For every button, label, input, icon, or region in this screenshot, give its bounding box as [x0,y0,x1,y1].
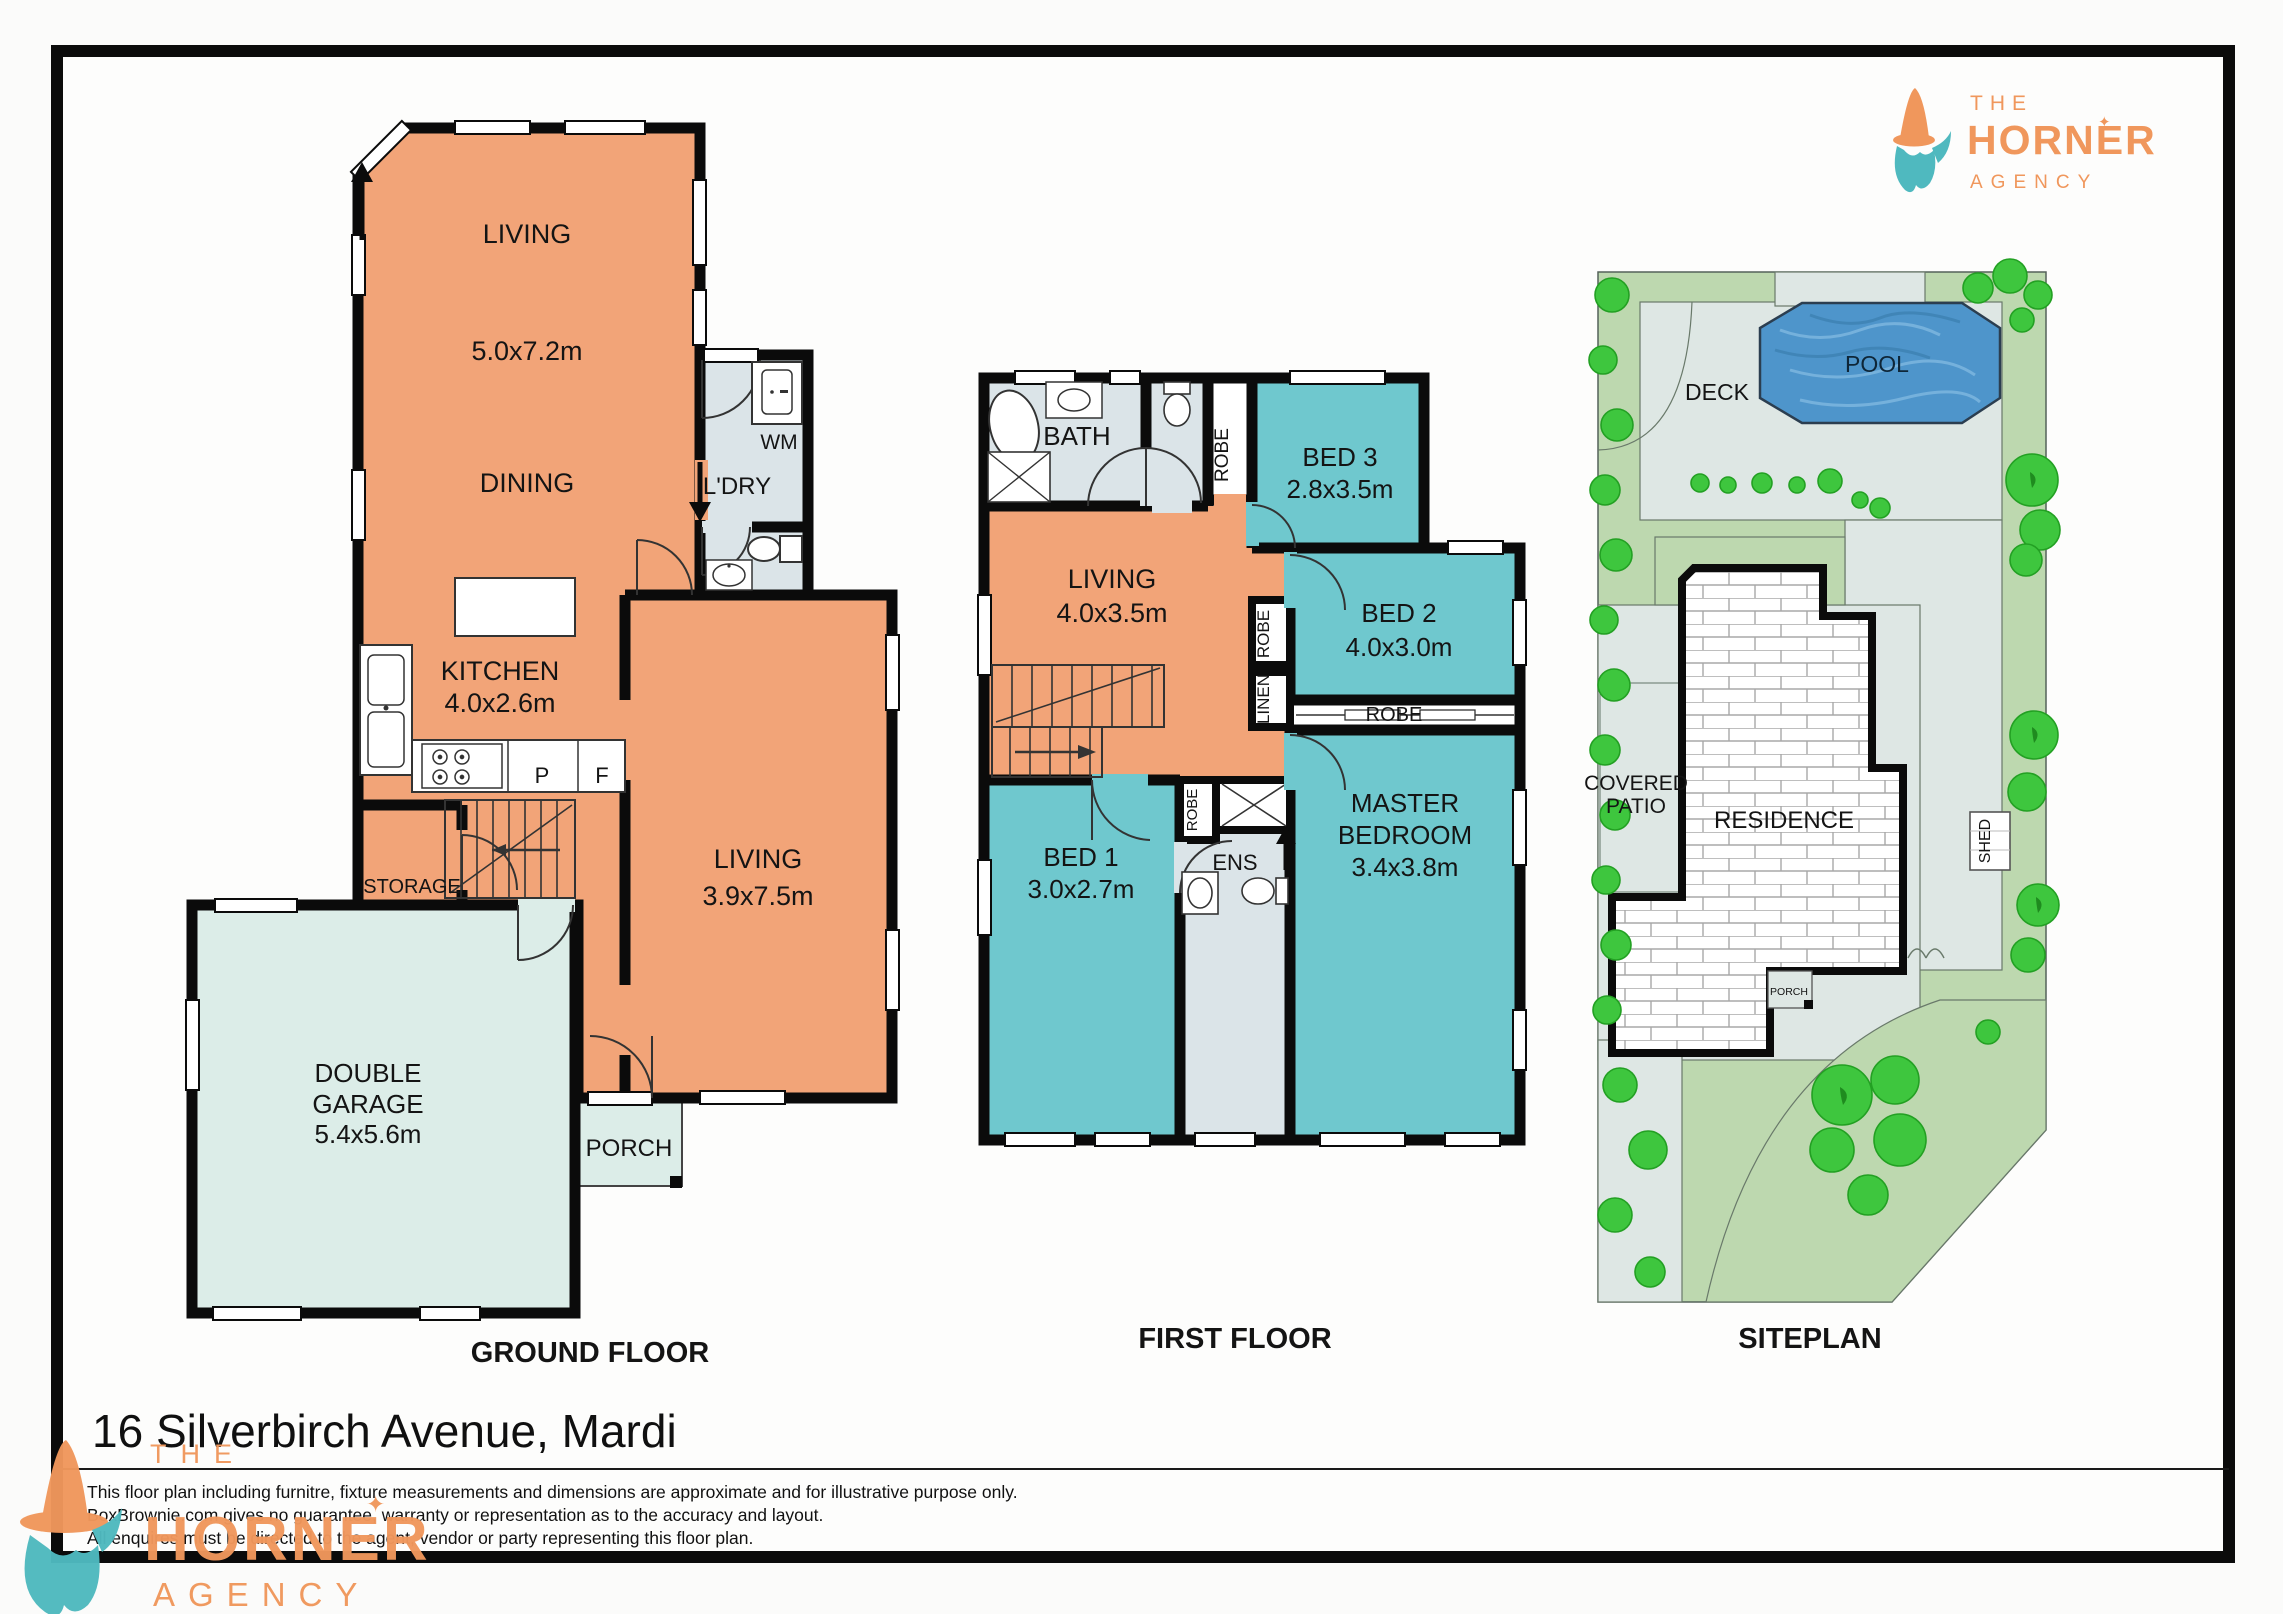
room-label-garage1: DOUBLE [315,1058,422,1088]
logo-horner: HORNER [1967,117,2157,163]
robe-label: ROBE [1254,610,1273,658]
room-label-living1: LIVING [483,219,572,249]
door-gap [1284,733,1297,790]
toilet-icon [748,536,802,562]
door-gap [1284,552,1297,608]
robe-label: ROBE [1184,789,1201,832]
room-label-living: LIVING [1068,564,1157,594]
room-label-garage2: GARAGE [312,1089,423,1119]
room-label-bed2: BED 2 [1361,598,1436,628]
room-label-bed3: BED 3 [1302,442,1377,472]
room-label-kitchen: KITCHEN [441,656,560,686]
floorplan-page: LIVING 5.0x7.2m DINING L'DRY WM KITCHEN … [0,0,2283,1614]
residence-label: RESIDENCE [1714,807,1854,834]
ground-floor-title: GROUND FLOOR [471,1337,709,1369]
plans-svg: LIVING 5.0x7.2m DINING L'DRY WM KITCHEN … [0,0,2283,1614]
room-label-living2: LIVING [714,844,803,874]
logo-the: THE [1970,92,2033,115]
toilet-icon [1276,878,1288,904]
room-label-master2: BEDROOM [1338,820,1472,850]
shed-label: SHED [1977,819,1994,863]
label-pantry: P [535,763,550,788]
disclaimer-line-2: BoxBrownie.com gives no guarantee, warra… [87,1505,823,1526]
room-dims-bed2: 4.0x3.0m [1346,632,1453,662]
room-label-dining: DINING [480,468,575,498]
porch-post [670,1176,682,1188]
door-gap [1214,494,1246,507]
title-divider [57,1468,2229,1470]
room-dims-living1: 5.0x7.2m [471,336,582,366]
room-dims-living: 4.0x3.5m [1056,598,1167,628]
room-label-bed1: BED 1 [1043,842,1118,872]
disclaimer-line-3: All enquires must be directed to the age… [87,1528,753,1549]
gnome-icon [1893,88,1951,192]
pool-label: POOL [1845,351,1909,377]
room-dims-kitchen: 4.0x2.6m [444,688,555,718]
first-floor-title: FIRST FLOOR [1138,1323,1331,1355]
linen-label: LINEN [1254,674,1273,724]
door-gap [518,899,575,912]
door-threshold [704,349,758,362]
door-gap [1152,500,1192,513]
room-label-porch: PORCH [586,1135,673,1162]
room-dims-bed3: 2.8x3.5m [1287,474,1394,504]
property-address-title: 16 Silverbirch Avenue, Mardi [92,1404,677,1458]
patio-label-1: COVERED [1584,772,1688,795]
disclaimer-line-1: This floor plan including furnitre, fixt… [87,1482,1018,1503]
room-label-ens: ENS [1212,850,1257,875]
label-fridge: F [595,763,608,788]
room-label-laundry: L'DRY [703,473,771,500]
first-floor-plan: BATH ROBE BED 3 2.8x3.5m LIVING 4.0x3.5m… [978,371,1526,1355]
room-dims-garage: 5.4x5.6m [315,1119,422,1149]
patio-label-2: PATIO [1606,795,1666,818]
door-gap [702,521,752,533]
door-threshold [588,1092,652,1105]
deck-label: DECK [1685,379,1750,405]
stove-icon [422,744,502,788]
logo-star-icon: ✦ [2098,114,2111,131]
robe-label: ROBE [1212,428,1233,482]
room-label-storage: STORAGE [363,876,460,898]
brand-logo: THE HORNER ✦ AGENCY [1893,88,2157,193]
door-gap [1246,502,1259,546]
siteplan: DECK POOL COVERED PATIO RESIDENCE SHED P… [1584,259,2060,1355]
room-dims-bed1: 3.0x2.7m [1028,874,1135,904]
siteplan-title: SITEPLAN [1738,1323,1881,1355]
basin-icon [706,560,752,590]
robe-band-door [1420,710,1475,720]
door-gap [1092,774,1148,787]
robe-label: ROBE [1366,704,1423,726]
room-dims-master: 3.4x3.8m [1352,852,1459,882]
ground-floor-plan: LIVING 5.0x7.2m DINING L'DRY WM KITCHEN … [186,121,899,1369]
toilet-icon [1164,382,1190,394]
room-label-bath: BATH [1043,421,1110,451]
island-bench [455,578,575,636]
room-label-master1: MASTER [1351,788,1459,818]
logo-agency: AGENCY [1970,172,2098,193]
label-wm: WM [760,431,797,454]
bed1-area [984,780,1180,1140]
room-dims-living2: 3.9x7.5m [702,881,813,911]
site-porch-label: PORCH [1770,986,1808,998]
